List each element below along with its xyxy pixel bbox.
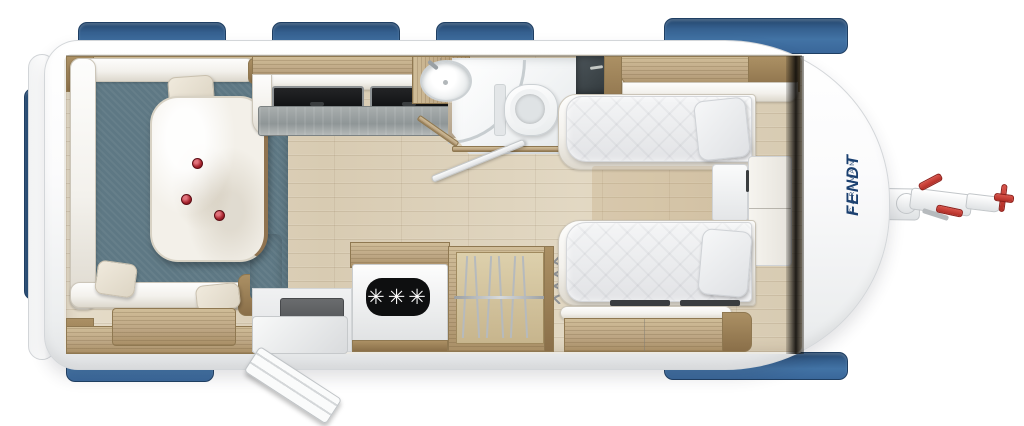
bed-top-pillow (693, 96, 751, 161)
wardrobe-side-panel (544, 246, 554, 352)
caravan-floorplan: FENDT CARAVAN (0, 0, 1024, 426)
drink-glass-3 (214, 210, 225, 221)
drink-glass-1 (192, 158, 203, 169)
lounge-pillow-left (94, 259, 138, 298)
series-text: CARAVAN (850, 158, 857, 213)
lounge-bench-left (70, 58, 96, 310)
coupling-handle-red (918, 173, 944, 192)
freezer-stars-icon: ✳✳✳ (366, 278, 430, 316)
entry-inner-step (252, 316, 348, 354)
basin-drain (443, 80, 448, 85)
bed-drawer-seam (644, 319, 645, 351)
fridge-base-strip (352, 340, 448, 352)
fendt-logo: FENDT CARAVAN (835, 139, 869, 231)
bed-step-box (712, 164, 748, 222)
front-chest-divider (749, 208, 791, 209)
drink-glass-2 (181, 194, 192, 205)
lounge-bench-top (70, 58, 256, 82)
dinette-table (150, 96, 268, 262)
chest-handle-1 (746, 170, 749, 192)
bed-bottom-end-cap (722, 312, 752, 352)
bed-bottom-pillow (697, 228, 753, 298)
wardrobe-rail (454, 296, 546, 299)
toilet-seat (510, 89, 550, 129)
front-interior-wall (786, 56, 804, 354)
lounge-sideboard (112, 308, 236, 346)
